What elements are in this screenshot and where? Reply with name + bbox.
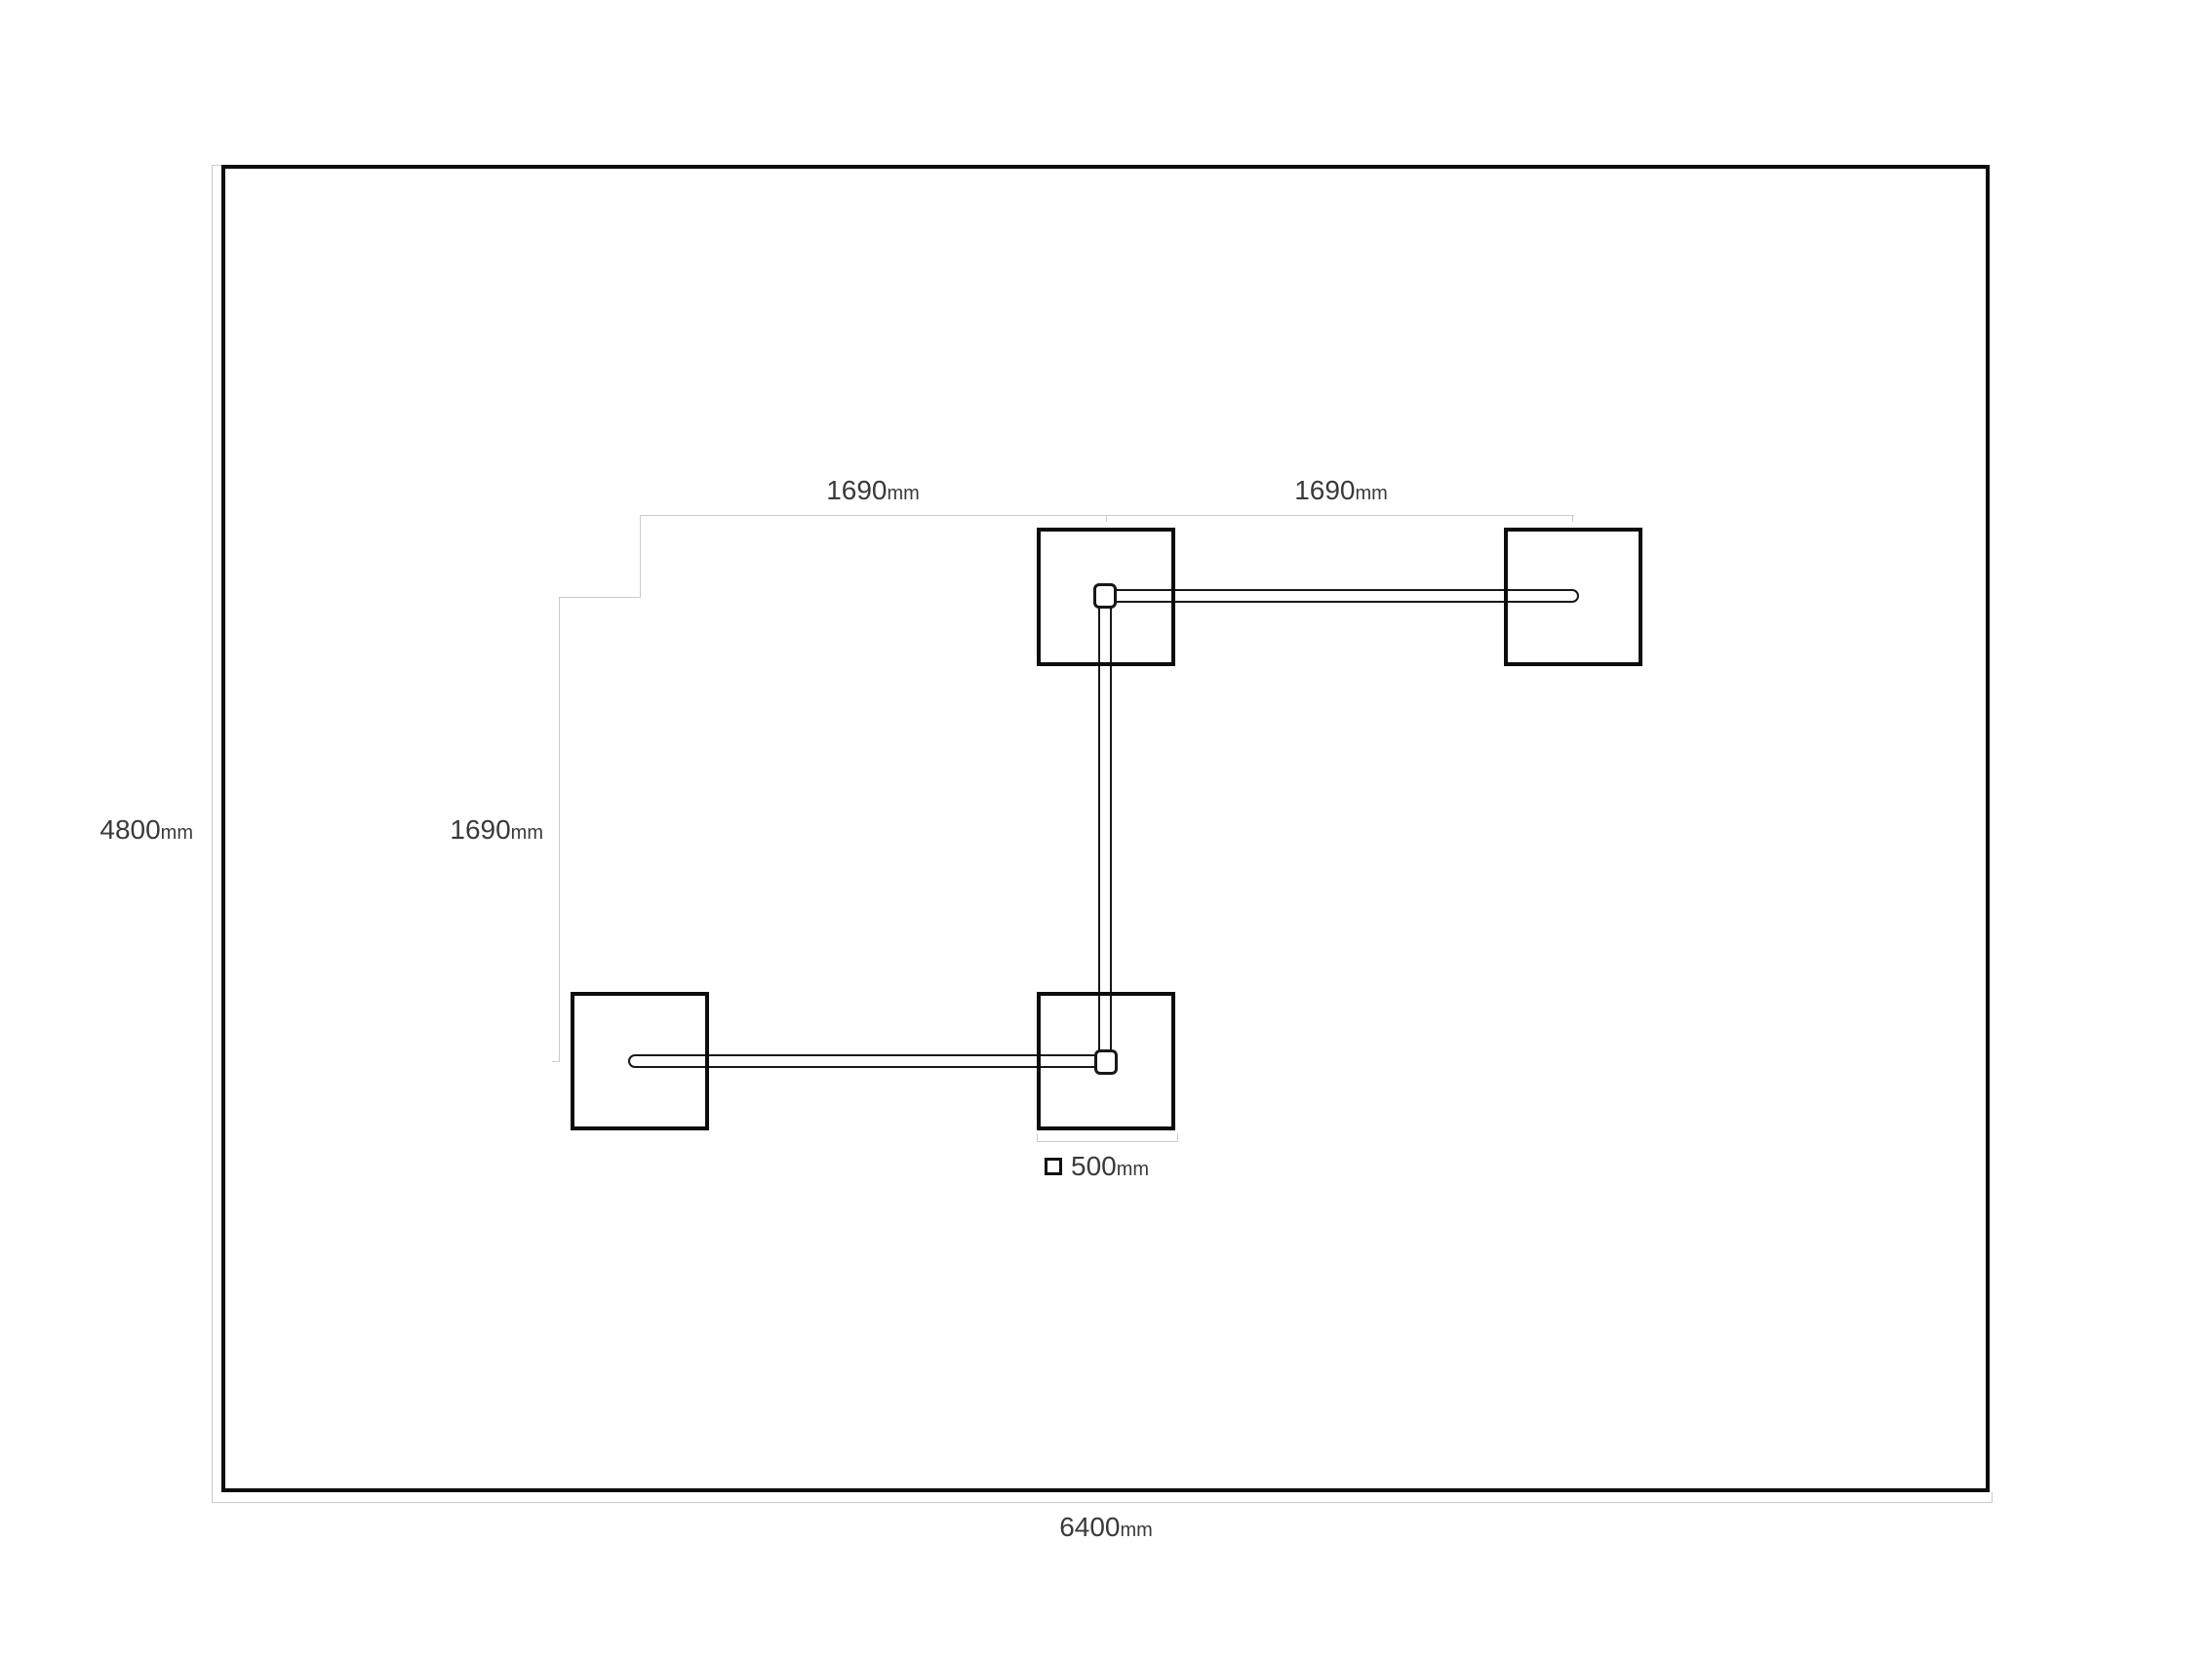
- legend-unit: mm: [1117, 1159, 1149, 1180]
- dimension-label-top-left: 1690mm: [826, 477, 920, 504]
- dimension-unit: mm: [161, 822, 193, 844]
- dimension-value: 1690: [1294, 475, 1355, 505]
- connector-node-bottom[interactable]: [1094, 1049, 1118, 1075]
- legend-value: 500: [1071, 1151, 1117, 1181]
- dimension-tick-middle: [1106, 515, 1107, 522]
- dimension-value: 4800: [99, 814, 160, 845]
- dimension-unit: mm: [511, 822, 543, 844]
- panel-top-right[interactable]: [1504, 528, 1642, 666]
- panel-size-legend: 500mm: [1045, 1153, 1149, 1180]
- plan-canvas: 1690mm 1690mm 1690mm 4800mm 6400mm 500mm: [0, 0, 2212, 1659]
- dimension-unit: mm: [1355, 483, 1387, 504]
- dimension-label-top-right: 1690mm: [1294, 477, 1388, 504]
- room-height-label: 4800mm: [99, 816, 193, 844]
- panel-bottom-left[interactable]: [571, 992, 709, 1130]
- legend-text: 500mm: [1071, 1153, 1149, 1180]
- panel-size-bracket-right-tick: [1177, 1133, 1178, 1142]
- dimension-jog-vertical: [640, 515, 641, 598]
- dimension-unit: mm: [1120, 1520, 1152, 1541]
- room-width-label: 6400mm: [1059, 1514, 1153, 1541]
- dimension-label-left: 1690mm: [450, 816, 543, 844]
- dimension-value: 1690: [450, 814, 510, 845]
- room-width-extension-line: [212, 1502, 1993, 1503]
- dimension-value: 1690: [826, 475, 887, 505]
- room-width-extension-tick: [1992, 1492, 1993, 1502]
- dimension-line-top: [640, 515, 1574, 516]
- room-height-extension-tick: [212, 165, 221, 166]
- dimension-value: 6400: [1059, 1512, 1120, 1542]
- dimension-jog-horizontal: [559, 597, 641, 598]
- panel-size-bracket-left-tick: [1037, 1133, 1038, 1142]
- connector-node-top[interactable]: [1093, 583, 1117, 609]
- dimension-unit: mm: [887, 483, 919, 504]
- dimension-line-left: [559, 597, 560, 1062]
- room-height-extension-line: [212, 165, 213, 1503]
- dimension-tick-right: [1572, 515, 1573, 522]
- dimension-tick-bottom: [552, 1061, 560, 1062]
- square-icon: [1045, 1158, 1062, 1175]
- panel-size-bracket: [1037, 1141, 1178, 1142]
